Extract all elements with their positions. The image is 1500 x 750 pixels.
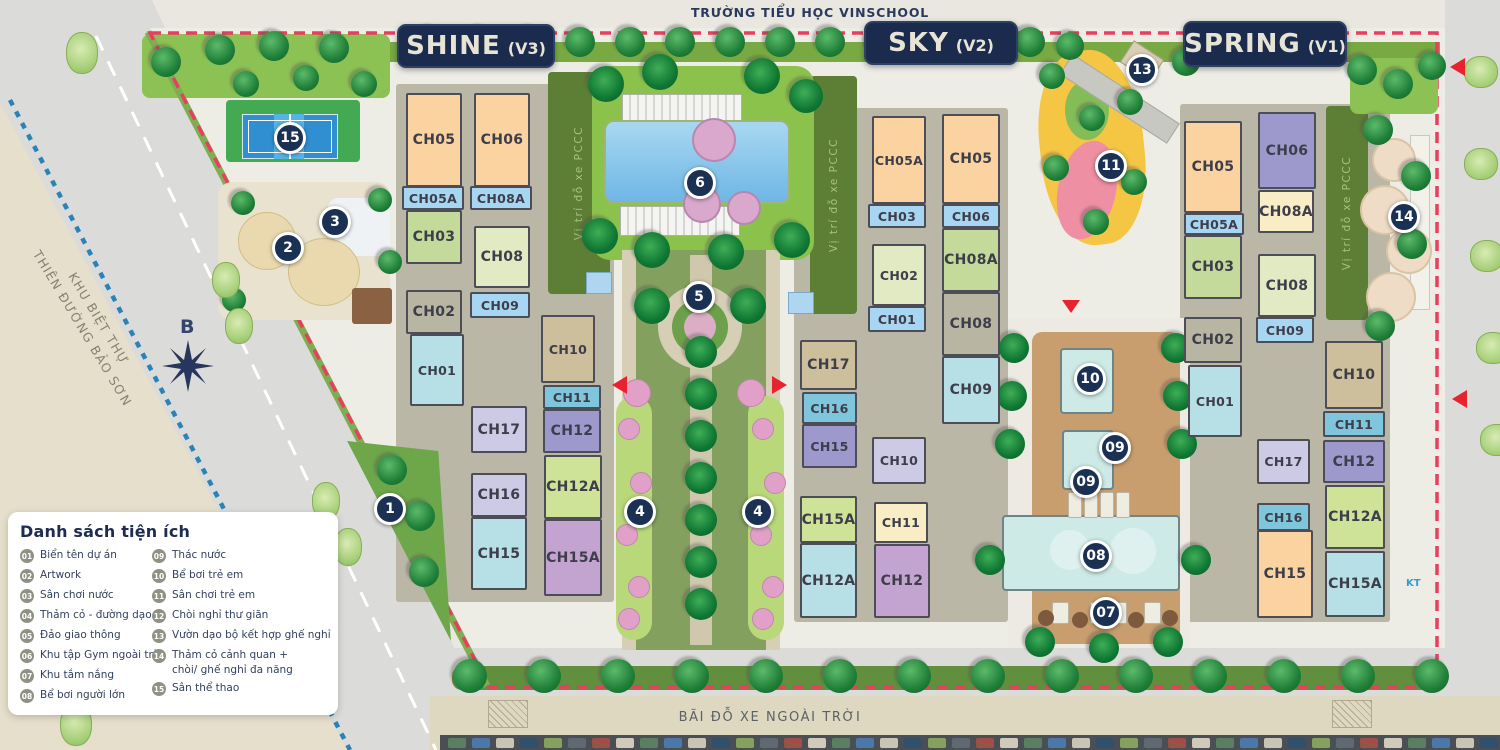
amenity-marker-6[interactable]: 6	[684, 167, 716, 199]
parking-area-label: BÃI ĐỖ XE NGOÀI TRỜI	[520, 710, 1020, 725]
tree-icon	[259, 31, 289, 61]
parked-car	[448, 738, 466, 748]
block-spring-ch10: CH10	[1325, 341, 1383, 409]
palm-tree-icon	[1025, 627, 1055, 657]
amenity-marker-07[interactable]: 07	[1090, 597, 1122, 629]
legend-item-14: 14Thảm cỏ cảnh quan +chòi/ ghế nghỉ đa n…	[152, 649, 328, 676]
block-spring-ch09: CH09	[1256, 317, 1314, 343]
street-tree-icon	[1470, 240, 1500, 272]
parked-car	[1336, 738, 1354, 748]
parked-car	[832, 738, 850, 748]
parked-car	[1240, 738, 1258, 748]
block-shine-ch08a: CH08A	[470, 186, 532, 210]
legend-item-13: 13Vườn dạo bộ kết hợp ghế nghỉ	[152, 629, 328, 643]
tree-icon	[749, 659, 783, 693]
gym-pergola	[622, 94, 742, 122]
tree-icon	[765, 27, 795, 57]
legend-title: Danh sách tiện ích	[20, 522, 326, 541]
parked-car	[544, 738, 562, 748]
amenity-marker-2[interactable]: 2	[272, 232, 304, 264]
legend-item-label: Bể bơi trẻ em	[172, 569, 243, 582]
tree-icon	[405, 501, 435, 531]
legend-item-number: 07	[20, 669, 34, 683]
legend-item-label: Khu tập Gym ngoài trời	[40, 649, 162, 662]
block-spring-ch05a: CH05A	[1184, 213, 1244, 235]
palm-tree-icon	[995, 429, 1025, 459]
tree-icon	[971, 659, 1005, 693]
amenity-marker-11[interactable]: 11	[1095, 150, 1127, 182]
tree-icon	[1341, 659, 1375, 693]
parked-car	[1168, 738, 1186, 748]
amenity-marker-3[interactable]: 3	[319, 206, 351, 238]
parked-car	[1312, 738, 1330, 748]
block-spring-ch06: CH06	[1258, 112, 1316, 189]
amenity-marker-4-2[interactable]: 4	[742, 496, 774, 528]
block-shine-ch17: CH17	[471, 406, 527, 453]
tree-icon	[1193, 659, 1227, 693]
site-plan: Vị trí đỗ xe PCCC Vị trí đỗ xe PCCC Vị t…	[0, 0, 1500, 750]
pool-lounger	[1116, 492, 1130, 518]
parked-car	[664, 738, 682, 748]
legend-item-label: Đảo giao thông	[40, 629, 121, 642]
parked-car	[568, 738, 586, 748]
block-spring-ch17: CH17	[1257, 439, 1310, 484]
parked-car	[1264, 738, 1282, 748]
compass-icon	[162, 340, 214, 392]
access-arrow-icon	[1062, 300, 1080, 313]
parked-car	[1096, 738, 1114, 748]
fire-lane-label: Vị trí đỗ xe PCCC	[1341, 156, 1353, 270]
tree-icon	[453, 659, 487, 693]
legend-item-label: Thảm cỏ cảnh quan +chòi/ ghế nghỉ đa năn…	[172, 649, 293, 676]
parked-car	[1480, 738, 1498, 748]
parked-car	[1192, 738, 1210, 748]
block-spring-ch11: CH11	[1323, 411, 1385, 437]
block-shine-ch10: CH10	[541, 315, 595, 383]
pool-lounger	[1100, 492, 1114, 518]
amenity-marker-08[interactable]: 08	[1080, 540, 1112, 572]
legend-item-08: 08Bể bơi người lớn	[20, 689, 146, 703]
tree-icon	[231, 191, 255, 215]
parked-car	[1000, 738, 1018, 748]
street-tree-icon	[1464, 56, 1498, 88]
north-road-label: TRƯỜNG TIỂU HỌC VINSCHOOL	[610, 5, 1010, 20]
block-spring-ch02: CH02	[1184, 317, 1242, 363]
zone-badge-sky: SKY (V2)	[864, 21, 1018, 65]
tree-icon	[319, 33, 349, 63]
parked-car	[952, 738, 970, 748]
palm-tree-icon	[685, 546, 717, 578]
block-spring-ch05: CH05	[1184, 121, 1242, 213]
tree-icon	[1039, 63, 1065, 89]
block-shine-ch12a: CH12A	[544, 455, 602, 519]
tree-icon	[665, 27, 695, 57]
legend-item-number: 09	[152, 549, 166, 563]
tree-icon	[1347, 55, 1377, 85]
legend-item-label: Sân chơi nước	[40, 589, 114, 602]
parked-car	[616, 738, 634, 748]
deck-tree-icon	[1128, 612, 1144, 628]
zone-code: (V1)	[1308, 37, 1346, 56]
block-spring-ch15a: CH15A	[1325, 551, 1385, 617]
palm-tree-icon	[730, 288, 766, 324]
entrance-pad	[586, 272, 612, 294]
tree-icon	[715, 27, 745, 57]
legend-item-number: 08	[20, 689, 34, 703]
block-shine-ch15: CH15	[471, 517, 527, 590]
deck-tree-icon	[1162, 610, 1178, 626]
legend-item-number: 15	[152, 682, 166, 696]
palm-tree-icon	[975, 545, 1005, 575]
tree-icon	[1383, 69, 1413, 99]
parked-car	[1216, 738, 1234, 748]
block-shine-ch15a: CH15A	[544, 519, 602, 596]
tree-icon	[675, 659, 709, 693]
tree-icon	[601, 659, 635, 693]
legend-item-12: 12Chòi nghỉ thư giãn	[152, 609, 328, 623]
tree-icon	[377, 455, 407, 485]
flower-patch	[630, 472, 652, 494]
tree-icon	[293, 65, 319, 91]
tree-icon	[1079, 105, 1105, 131]
pool-splash	[1110, 528, 1156, 574]
tree-icon	[233, 71, 259, 97]
tree-icon	[1363, 115, 1393, 145]
block-sky-ch12: CH12	[874, 544, 930, 618]
parked-car	[496, 738, 514, 748]
legend-item-number: 06	[20, 649, 34, 663]
legend-column-2: 09Thác nước10Bể bơi trẻ em11Sân chơi trẻ…	[152, 549, 328, 703]
flower-patch	[764, 472, 786, 494]
amenity-marker-10[interactable]: 10	[1074, 363, 1106, 395]
tree-icon	[1415, 659, 1449, 693]
palm-tree-icon	[685, 336, 717, 368]
legend-item-07: 07Khu tắm nắng	[20, 669, 146, 683]
parked-car	[640, 738, 658, 748]
parked-car	[712, 738, 730, 748]
zone-name: SKY	[888, 28, 949, 58]
palm-tree-icon	[774, 222, 810, 258]
tree-icon	[1015, 27, 1045, 57]
block-sky-ch12a: CH12A	[800, 543, 857, 618]
tree-icon	[205, 35, 235, 65]
deck-tree-icon	[1038, 610, 1054, 626]
legend-item-01: 01Biển tên dự án	[20, 549, 146, 563]
parked-car	[1456, 738, 1474, 748]
parked-car	[976, 738, 994, 748]
flower-patch	[618, 418, 640, 440]
block-sky-ch17: CH17	[800, 340, 857, 390]
tree-icon	[368, 188, 392, 212]
tree-icon	[151, 47, 181, 77]
block-shine-ch16: CH16	[471, 473, 527, 517]
block-spring-ch08: CH08	[1258, 254, 1316, 317]
legend-item-number: 04	[20, 609, 34, 623]
street-tree-icon	[1464, 148, 1498, 180]
zone-code: (V2)	[956, 36, 994, 55]
tree-icon	[1117, 89, 1143, 115]
tree-icon	[1365, 311, 1395, 341]
block-spring-ch01: CH01	[1188, 365, 1242, 437]
legend-item-04: 04Thảm cỏ - đường dạo	[20, 609, 146, 623]
block-sky-ch10: CH10	[872, 437, 926, 484]
tree-icon	[1267, 659, 1301, 693]
legend-item-number: 14	[152, 649, 166, 663]
block-shine-ch12: CH12	[543, 409, 601, 453]
legend-item-09: 09Thác nước	[152, 549, 328, 563]
tree-icon	[378, 250, 402, 274]
block-shine-ch01: CH01	[410, 334, 464, 406]
block-sky-ch05a: CH05A	[872, 116, 926, 204]
block-shine-ch05a: CH05A	[402, 186, 464, 210]
parked-car	[1072, 738, 1090, 748]
block-spring-ch03: CH03	[1184, 235, 1242, 299]
legend-item-label: Chòi nghỉ thư giãn	[172, 609, 268, 622]
block-sky-ch02: CH02	[872, 244, 926, 306]
parked-car	[1024, 738, 1042, 748]
zone-name: SPRING	[1184, 29, 1301, 59]
block-sky-ch15: CH15	[802, 424, 857, 468]
legend-item-label: Artwork	[40, 569, 81, 582]
block-spring-ch08a: CH08A	[1258, 190, 1314, 233]
fire-lane-label: Vị trí đỗ xe PCCC	[828, 138, 840, 252]
amenity-marker-14[interactable]: 14	[1388, 201, 1420, 233]
deck-tree-icon	[1072, 612, 1088, 628]
parked-car	[1144, 738, 1162, 748]
legend-item-number: 03	[20, 589, 34, 603]
zone-badge-spring: SPRING (V1)	[1183, 21, 1347, 67]
block-shine-ch06: CH06	[474, 93, 530, 187]
legend-item-number: 05	[20, 629, 34, 643]
tree-icon	[409, 557, 439, 587]
flower-patch	[762, 576, 784, 598]
tree-icon	[1045, 659, 1079, 693]
parked-car	[1120, 738, 1138, 748]
parked-car	[904, 738, 922, 748]
legend-item-label: Thác nước	[172, 549, 226, 562]
palm-tree-icon	[789, 79, 823, 113]
parked-car	[472, 738, 490, 748]
flower-patch	[623, 379, 651, 407]
palm-tree-icon	[685, 588, 717, 620]
palm-tree-icon	[582, 218, 618, 254]
amenity-marker-1[interactable]: 1	[374, 493, 406, 525]
amenity-marker-4[interactable]: 4	[624, 496, 656, 528]
parked-car	[928, 738, 946, 748]
block-sky-ch01: CH01	[868, 306, 926, 332]
block-sky-ch15a: CH15A	[800, 496, 857, 543]
flower-patch	[737, 379, 765, 407]
block-shine-ch05: CH05	[406, 93, 462, 187]
block-sky-ch16: CH16	[802, 392, 857, 424]
legend-item-number: 13	[152, 629, 166, 643]
parked-car	[1384, 738, 1402, 748]
block-shine-ch02: CH02	[406, 290, 462, 334]
gym-pergola	[620, 206, 740, 236]
street-tree-icon	[225, 308, 253, 344]
amenities-legend: Danh sách tiện ích 01Biển tên dự án02Art…	[8, 512, 338, 715]
palm-tree-icon	[634, 288, 670, 324]
block-sky-ch09: CH09	[942, 356, 1000, 424]
legend-item-15: 15Sân thể thao	[152, 682, 328, 696]
legend-item-label: Khu tắm nắng	[40, 669, 114, 682]
parked-car	[880, 738, 898, 748]
flower-patch	[628, 576, 650, 598]
block-spring-ch12: CH12	[1323, 440, 1385, 483]
legend-item-label: Biển tên dự án	[40, 549, 117, 562]
block-sky-ch11: CH11	[874, 502, 928, 543]
block-sky-ch08a: CH08A	[942, 228, 1000, 292]
legend-column-1: 01Biển tên dự án02Artwork03Sân chơi nước…	[20, 549, 146, 703]
parked-car	[736, 738, 754, 748]
access-arrow-icon	[1450, 58, 1465, 76]
palm-tree-icon	[685, 420, 717, 452]
parked-car	[592, 738, 610, 748]
legend-item-02: 02Artwork	[20, 569, 146, 583]
block-spring-ch16: CH16	[1257, 503, 1310, 531]
street-tree-icon	[1476, 332, 1500, 364]
compass-north-label: B	[180, 316, 194, 338]
legend-item-label: Sân chơi trẻ em	[172, 589, 255, 602]
tree-icon	[1119, 659, 1153, 693]
flower-patch	[752, 608, 774, 630]
legend-item-label: Thảm cỏ - đường dạo	[40, 609, 152, 622]
parked-car	[520, 738, 538, 748]
parked-car	[1360, 738, 1378, 748]
palm-tree-icon	[997, 381, 1027, 411]
parked-car	[1048, 738, 1066, 748]
tree-icon	[897, 659, 931, 693]
block-shine-ch03: CH03	[406, 210, 462, 264]
parked-car	[760, 738, 778, 748]
block-sky-ch06: CH06	[942, 204, 1000, 228]
fire-lane-label: Vị trí đỗ xe PCCC	[573, 126, 585, 240]
legend-item-number: 12	[152, 609, 166, 623]
legend-item-03: 03Sân chơi nước	[20, 589, 146, 603]
zone-badge-shine: SHINE (V3)	[397, 24, 555, 68]
legend-item-label: Sân thể thao	[172, 682, 239, 695]
amenity-marker-5[interactable]: 5	[683, 281, 715, 313]
tree-icon	[1401, 161, 1431, 191]
palm-tree-icon	[634, 232, 670, 268]
parked-car	[808, 738, 826, 748]
block-spring-ch12a: CH12A	[1325, 485, 1385, 549]
block-shine-ch09: CH09	[470, 292, 530, 318]
palm-tree-icon	[1089, 633, 1119, 663]
palm-tree-icon	[685, 462, 717, 494]
amenity-marker-13[interactable]: 13	[1126, 54, 1158, 86]
palm-tree-icon	[685, 504, 717, 536]
parked-car	[784, 738, 802, 748]
tree-icon	[1418, 52, 1446, 80]
wood-deck	[352, 288, 392, 324]
road-note: KT	[1406, 578, 1421, 589]
flower-patch	[618, 608, 640, 630]
legend-item-06: 06Khu tập Gym ngoài trời	[20, 649, 146, 663]
parked-car	[1288, 738, 1306, 748]
legend-item-number: 10	[152, 569, 166, 583]
entrance-pad	[788, 292, 814, 314]
parked-car	[1408, 738, 1426, 748]
tree-icon	[565, 27, 595, 57]
flower-bed	[727, 191, 761, 225]
tree-icon	[527, 659, 561, 693]
tree-icon	[351, 71, 377, 97]
parking-hatch	[1332, 700, 1372, 728]
parked-car	[856, 738, 874, 748]
legend-item-10: 10Bể bơi trẻ em	[152, 569, 328, 583]
amenity-marker-09[interactable]: 09	[1099, 432, 1131, 464]
street-tree-icon	[212, 262, 240, 298]
block-spring-ch15: CH15	[1257, 530, 1313, 618]
parked-car	[688, 738, 706, 748]
access-arrow-icon	[612, 376, 627, 394]
block-shine-ch11: CH11	[543, 385, 601, 409]
street-tree-icon	[334, 528, 362, 566]
legend-item-05: 05Đảo giao thông	[20, 629, 146, 643]
palm-tree-icon	[744, 58, 780, 94]
legend-item-number: 11	[152, 589, 166, 603]
palm-tree-icon	[642, 54, 678, 90]
tree-icon	[1056, 32, 1084, 60]
flower-bed	[692, 118, 736, 162]
access-arrow-icon	[1452, 390, 1467, 408]
tree-icon	[615, 27, 645, 57]
palm-tree-icon	[588, 66, 624, 102]
palm-tree-icon	[1153, 627, 1183, 657]
zone-code: (V3)	[508, 39, 546, 58]
palm-tree-icon	[685, 378, 717, 410]
block-sky-ch08: CH08	[942, 292, 1000, 356]
block-sky-ch05: CH05	[942, 114, 1000, 204]
palm-tree-icon	[708, 234, 744, 270]
tree-icon	[823, 659, 857, 693]
palm-tree-icon	[1181, 545, 1211, 575]
legend-item-label: Bể bơi người lớn	[40, 689, 125, 702]
amenity-marker-09-2[interactable]: 09	[1070, 466, 1102, 498]
amenity-marker-15[interactable]: 15	[274, 122, 306, 154]
access-arrow-icon	[772, 376, 787, 394]
parked-car	[1432, 738, 1450, 748]
tree-icon	[815, 27, 845, 57]
legend-item-number: 01	[20, 549, 34, 563]
tree-icon	[1083, 209, 1109, 235]
palm-tree-icon	[999, 333, 1029, 363]
street-tree-icon	[66, 32, 98, 74]
flower-patch	[752, 418, 774, 440]
tree-icon	[1043, 155, 1069, 181]
fire-lane-strip: Vị trí đỗ xe PCCC	[810, 76, 857, 314]
legend-item-number: 02	[20, 569, 34, 583]
zone-name: SHINE	[406, 31, 501, 61]
legend-item-label: Vườn dạo bộ kết hợp ghế nghỉ	[172, 629, 331, 642]
sunbed	[1052, 602, 1069, 624]
legend-item-11: 11Sân chơi trẻ em	[152, 589, 328, 603]
tree-icon	[1397, 229, 1427, 259]
block-sky-ch03: CH03	[868, 204, 926, 228]
block-shine-ch08: CH08	[474, 226, 530, 288]
sunbed	[1144, 602, 1161, 624]
